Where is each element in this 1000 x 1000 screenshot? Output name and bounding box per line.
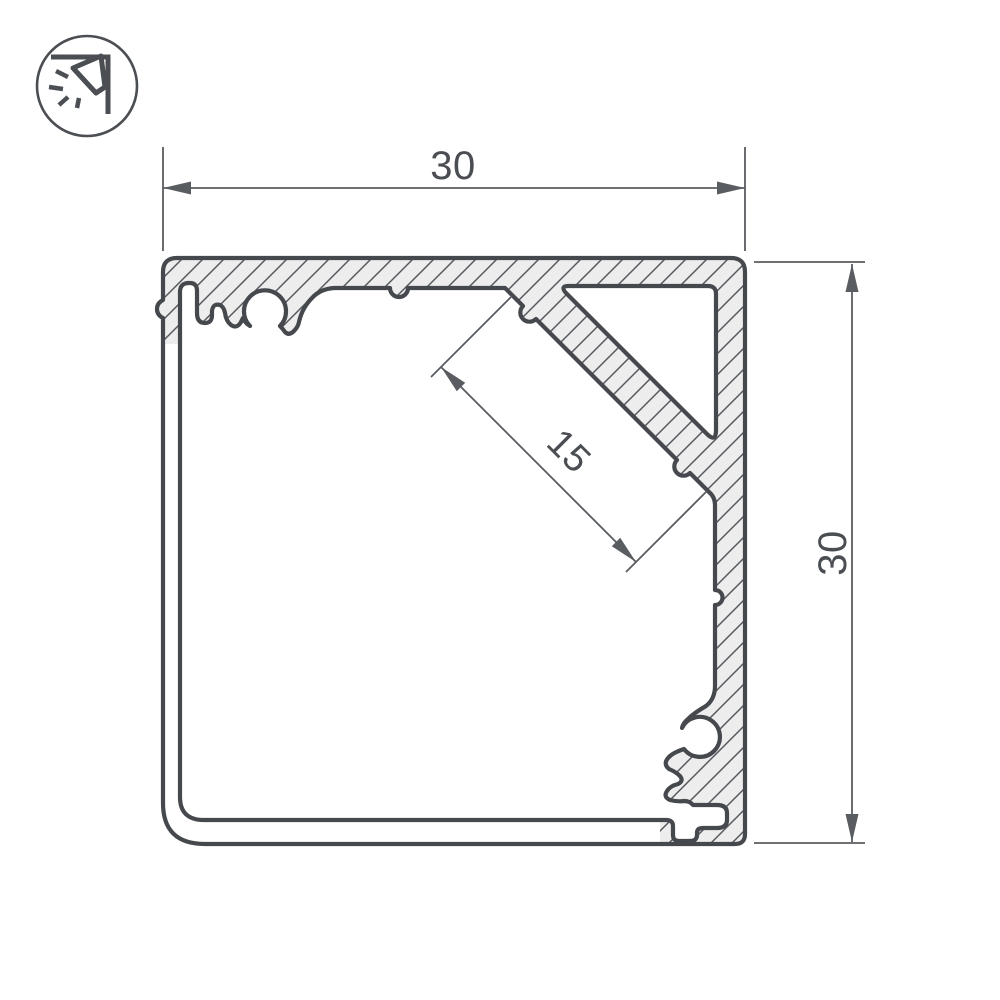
logo-badge (37, 36, 137, 136)
width-dimension-label: 30 (430, 144, 476, 188)
profile-metal-base (157, 258, 745, 844)
dim-arrow-left (163, 182, 191, 195)
height-dimension: 30 (754, 262, 865, 843)
dimension-line (441, 367, 636, 562)
profile-outline (157, 258, 745, 844)
light-rays (49, 71, 79, 108)
dim-arrow-up (846, 264, 859, 292)
profile-cross-section (157, 258, 745, 844)
extension-line (431, 296, 512, 377)
dim-arrow-down (846, 814, 859, 842)
width-dimension: 30 (163, 144, 745, 251)
dim-arrow-right (717, 182, 745, 195)
drawing-page: 30 30 15 (0, 0, 1000, 1000)
extension-line (626, 491, 707, 572)
profile-metal-fill (157, 258, 745, 844)
technical-drawing-canvas: 30 30 15 (0, 0, 1000, 1000)
lamp-head (73, 56, 105, 93)
height-dimension-label: 30 (811, 530, 855, 576)
corner-light-icon (49, 56, 108, 114)
profile-hatching (157, 258, 745, 844)
